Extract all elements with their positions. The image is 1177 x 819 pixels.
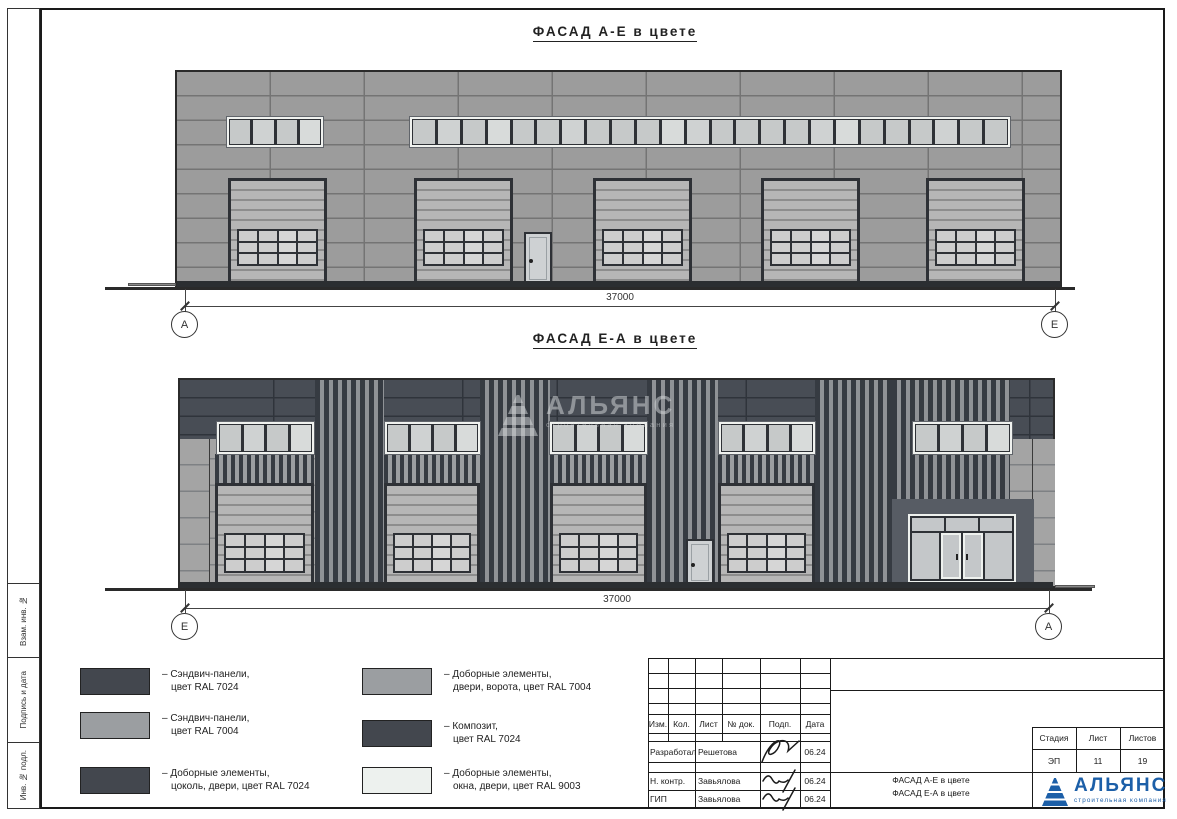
- window-pane: [587, 120, 609, 144]
- titleblock-line: [695, 658, 696, 809]
- window-pane: [266, 535, 284, 546]
- tb-col-podp: Подп.: [760, 714, 800, 733]
- legend-item: – Доборные элементы, окна, двери, цвет R…: [444, 767, 581, 793]
- window-pane: [787, 560, 804, 571]
- entrance-portal: [892, 499, 1034, 586]
- window-pane: [957, 243, 975, 253]
- window-pane: [769, 425, 789, 451]
- logo-name: АЛЬЯНС: [1074, 776, 1167, 796]
- ribbon-window: [385, 422, 480, 454]
- legend-item: – Доборные элементы, цоколь, двери, цвет…: [162, 767, 310, 793]
- axis-bubble-e: Е: [171, 613, 198, 640]
- window-pane: [624, 231, 642, 241]
- window-pane: [663, 243, 681, 253]
- window-pane: [253, 120, 273, 144]
- legend-swatch: [362, 767, 432, 794]
- gate-window-grid: [770, 229, 851, 266]
- window-pane: [600, 535, 617, 546]
- stamp-cell-inv: Инв. № подл.: [8, 742, 39, 808]
- axis-bubble-a: А: [171, 311, 198, 338]
- window-pane: [748, 535, 765, 546]
- window-pane: [434, 425, 454, 451]
- titleblock-line: [648, 807, 830, 808]
- window-pane: [388, 425, 408, 451]
- window-pane: [488, 120, 510, 144]
- legend-line: окна, двери, цвет RAL 9003: [453, 780, 581, 793]
- sectional-gate-3: [593, 178, 692, 285]
- tb-date: 06.24: [800, 790, 830, 807]
- window-pane: [246, 548, 264, 559]
- window-pane: [722, 425, 742, 451]
- window-pane: [425, 231, 443, 241]
- legend-line: – Доборные элементы,: [444, 767, 581, 780]
- left-panel-column: [180, 439, 210, 586]
- titleblock-line: [648, 703, 830, 704]
- window-pane: [772, 231, 790, 241]
- tb-date: 06.24: [800, 772, 830, 790]
- window-pane: [745, 425, 765, 451]
- gate-window-grid: [224, 533, 305, 573]
- window-pane: [246, 535, 264, 546]
- window-pane: [537, 120, 559, 144]
- window-pane: [395, 548, 412, 559]
- glass-pane: [980, 518, 1012, 531]
- window-pane: [792, 231, 810, 241]
- watermark-name: АЛЬЯНС: [546, 392, 675, 418]
- window-pane: [562, 120, 584, 144]
- window-pane: [996, 231, 1014, 241]
- window-pane: [787, 535, 804, 546]
- window-pane: [916, 425, 937, 451]
- legend-line: – Доборные элементы,: [444, 668, 591, 681]
- window-pane: [831, 231, 849, 241]
- window-pane: [226, 548, 244, 559]
- personnel-door: [524, 232, 552, 285]
- window-pane: [561, 535, 578, 546]
- signature: [760, 786, 800, 812]
- gate-window-grid: [602, 229, 683, 266]
- window-pane: [298, 254, 316, 264]
- legend-line: цвет RAL 7004: [171, 725, 249, 738]
- ribbon-window-long: [410, 117, 1010, 147]
- ribbon-window-short: [227, 117, 323, 147]
- glass-pane: [946, 518, 978, 531]
- tb-col-ndok: № док.: [722, 714, 760, 733]
- window-pane: [279, 231, 297, 241]
- legend-line: цоколь, двери, цвет RAL 7024: [171, 780, 310, 793]
- window-pane: [792, 425, 812, 451]
- company-watermark: АЛЬЯНС строительная компания: [498, 392, 675, 436]
- tb-col-data: Дата: [800, 714, 830, 733]
- ribbon-window: [217, 422, 314, 454]
- window-pane: [663, 254, 681, 264]
- slat-fringe: [384, 454, 480, 483]
- titleblock-line: [830, 690, 1165, 691]
- window-pane: [996, 243, 1014, 253]
- window-pane: [226, 560, 244, 571]
- legend-line: цвет RAL 7024: [171, 681, 249, 694]
- ground-line: [105, 588, 1092, 591]
- sectional-gate-5: [926, 178, 1025, 285]
- tb-sheets-value: 19: [1120, 749, 1165, 772]
- window-pane: [831, 243, 849, 253]
- sectional-gate-1: [215, 483, 314, 586]
- tb-sheet-label: Лист: [1076, 727, 1120, 749]
- slat-cluster: [315, 380, 384, 586]
- tb-role: Разработал: [650, 741, 695, 762]
- ribbon-window: [913, 422, 1012, 454]
- ramp-curb: [1055, 585, 1095, 588]
- sectional-gate-4: [761, 178, 860, 285]
- gate-window-grid: [727, 533, 806, 573]
- window-pane: [600, 548, 617, 559]
- window-pane: [604, 243, 622, 253]
- window-pane: [836, 120, 858, 144]
- legend-item: – Доборные элементы, двери, ворота, цвет…: [444, 668, 591, 694]
- window-pane: [465, 254, 483, 264]
- window-pane: [937, 231, 955, 241]
- window-pane: [484, 231, 502, 241]
- legend-item: – Сэндвич-панели, цвет RAL 7004: [162, 712, 249, 738]
- window-pane: [911, 120, 933, 144]
- dimension-line: [185, 306, 1055, 307]
- window-pane: [772, 254, 790, 264]
- stamp-cell-podpis: Подпись и дата: [8, 657, 39, 742]
- door-leaf: [941, 533, 961, 579]
- dimension-line: [185, 608, 1049, 609]
- window-pane: [465, 243, 483, 253]
- window-pane: [787, 548, 804, 559]
- titleblock-line: [648, 673, 830, 674]
- window-pane: [561, 548, 578, 559]
- window-pane: [988, 425, 1009, 451]
- window-pane: [259, 254, 277, 264]
- window-pane: [964, 425, 985, 451]
- gate-window-grid: [423, 229, 504, 266]
- tb-name: Завьялова: [698, 772, 758, 790]
- window-pane: [452, 535, 469, 546]
- window-pane: [445, 254, 463, 264]
- slat-fringe: [215, 454, 314, 483]
- watermark-subtitle: строительная компания: [546, 420, 675, 429]
- window-pane: [712, 120, 734, 144]
- window-pane: [748, 560, 765, 571]
- window-pane: [624, 243, 642, 253]
- slat-cluster: [815, 380, 892, 586]
- window-pane: [811, 120, 833, 144]
- window-pane: [433, 560, 450, 571]
- axis-leader-line: [1055, 289, 1056, 312]
- legend-line: цвет RAL 7024: [453, 733, 521, 746]
- stamp-cell-vzam: Взам. инв. №: [8, 583, 39, 657]
- storefront-glazing: [908, 514, 1016, 583]
- window-pane: [298, 231, 316, 241]
- window-pane: [768, 548, 785, 559]
- window-pane: [792, 254, 810, 264]
- window-pane: [768, 535, 785, 546]
- window-pane: [300, 120, 320, 144]
- window-pane: [452, 560, 469, 571]
- window-pane: [977, 254, 995, 264]
- window-pane: [580, 535, 597, 546]
- window-pane: [285, 535, 303, 546]
- stamp-label: Подпись и дата: [19, 671, 28, 729]
- window-pane: [619, 560, 636, 571]
- gate-window-grid: [559, 533, 638, 573]
- window-pane: [748, 548, 765, 559]
- window-pane: [580, 548, 597, 559]
- window-pane: [957, 231, 975, 241]
- tb-doc-line: ФАСАД А-Е в цвете: [830, 774, 1032, 787]
- window-pane: [395, 535, 412, 546]
- window-pane: [637, 120, 659, 144]
- axis-leader-line: [1049, 590, 1050, 613]
- window-pane: [886, 120, 908, 144]
- legend-item: – Композит, цвет RAL 7024: [444, 720, 521, 746]
- window-pane: [259, 231, 277, 241]
- window-pane: [663, 231, 681, 241]
- window-pane: [438, 120, 460, 144]
- door-leaf: [963, 533, 983, 579]
- gate-window-grid: [237, 229, 318, 266]
- window-pane: [425, 243, 443, 253]
- window-pane: [957, 254, 975, 264]
- tb-sheets-label: Листов: [1120, 727, 1165, 749]
- window-pane: [612, 120, 634, 144]
- facade2-title: ФАСАД Е-А в цвете: [170, 331, 1060, 346]
- signature: [757, 734, 803, 766]
- company-logo: АЛЬЯНС строительная компания: [1042, 776, 1167, 806]
- window-pane: [729, 560, 746, 571]
- window-pane: [414, 560, 431, 571]
- window-pane: [604, 231, 622, 241]
- drawing-sheet: Взам. инв. № Подпись и дата Инв. № подл.…: [0, 0, 1177, 819]
- personnel-door: [686, 539, 714, 586]
- transom-row: [912, 518, 1012, 531]
- window-pane: [580, 560, 597, 571]
- stamp-label: Инв. № подл.: [19, 750, 28, 800]
- legend-line: двери, ворота, цвет RAL 7004: [453, 681, 591, 694]
- glass-pane: [912, 518, 944, 531]
- window-pane: [220, 425, 241, 451]
- titleblock-line: [648, 658, 1165, 659]
- sidelight: [985, 533, 1012, 579]
- window-pane: [729, 535, 746, 546]
- window-pane: [761, 120, 783, 144]
- left-stamp-strip: Взам. инв. № Подпись и дата Инв. № подл.: [7, 8, 40, 809]
- stamp-label: Взам. инв. №: [19, 596, 28, 646]
- tb-document-title: ФАСАД А-Е в цвете ФАСАД Е-А в цвете: [830, 774, 1032, 800]
- window-pane: [226, 535, 244, 546]
- window-pane: [414, 535, 431, 546]
- legend-swatch: [362, 668, 432, 695]
- legend-swatch: [80, 668, 150, 695]
- window-pane: [484, 243, 502, 253]
- window-pane: [266, 560, 284, 571]
- window-pane: [259, 243, 277, 253]
- window-pane: [996, 254, 1014, 264]
- window-pane: [463, 120, 485, 144]
- gate-window-grid: [935, 229, 1016, 266]
- door-row: [912, 533, 1012, 579]
- facade1-title: ФАСАД А-Е в цвете: [170, 24, 1060, 39]
- window-pane: [239, 254, 257, 264]
- ramp-curb: [128, 283, 176, 286]
- tb-role: ГИП: [650, 790, 695, 807]
- gate-window-grid: [393, 533, 471, 573]
- window-pane: [414, 548, 431, 559]
- window-pane: [644, 231, 662, 241]
- window-pane: [433, 548, 450, 559]
- sectional-gate-1: [228, 178, 327, 285]
- slat-fringe: [718, 454, 815, 483]
- tb-role: Н. контр.: [650, 772, 695, 790]
- window-pane: [246, 560, 264, 571]
- window-pane: [433, 535, 450, 546]
- window-pane: [768, 560, 785, 571]
- window-pane: [977, 243, 995, 253]
- window-pane: [619, 535, 636, 546]
- window-pane: [786, 120, 808, 144]
- sectional-gate-3: [550, 483, 647, 586]
- window-pane: [937, 254, 955, 264]
- window-pane: [937, 243, 955, 253]
- double-door: [941, 533, 982, 579]
- window-pane: [644, 254, 662, 264]
- titleblock-line: [648, 688, 830, 689]
- window-pane: [687, 120, 709, 144]
- window-pane: [484, 254, 502, 264]
- window-pane: [279, 243, 297, 253]
- window-pane: [831, 254, 849, 264]
- window-pane: [277, 120, 297, 144]
- titleblock-line: [830, 772, 1165, 773]
- window-pane: [445, 231, 463, 241]
- window-pane: [940, 425, 961, 451]
- legend-line: – Сэндвич-панели,: [162, 712, 249, 725]
- legend-line: – Доборные элементы,: [162, 767, 310, 780]
- window-pane: [604, 254, 622, 264]
- window-pane: [935, 120, 957, 144]
- tb-col-izm: Изм.: [648, 714, 668, 733]
- window-pane: [457, 425, 477, 451]
- facade1-elevation: [175, 70, 1062, 289]
- tb-stage-label: Стадия: [1032, 727, 1076, 749]
- ribbon-window: [719, 422, 815, 454]
- window-pane: [960, 120, 982, 144]
- window-pane: [736, 120, 758, 144]
- window-pane: [395, 560, 412, 571]
- sectional-gate-2: [414, 178, 513, 285]
- window-pane: [861, 120, 883, 144]
- window-pane: [267, 425, 288, 451]
- window-pane: [513, 120, 535, 144]
- window-pane: [561, 560, 578, 571]
- window-pane: [413, 120, 435, 144]
- window-pane: [465, 231, 483, 241]
- window-pane: [812, 243, 830, 253]
- dimension-label: 37000: [185, 594, 1049, 605]
- tb-date: 06.24: [800, 741, 830, 762]
- logo-subtitle: строительная компания: [1074, 797, 1167, 804]
- sidelight: [912, 533, 939, 579]
- slat-fringe: [550, 454, 647, 483]
- tb-col-kol: Кол.: [668, 714, 695, 733]
- tb-col-list: Лист: [695, 714, 722, 733]
- window-pane: [985, 120, 1007, 144]
- ground-line: [105, 287, 1075, 290]
- dimension-label: 37000: [185, 292, 1055, 303]
- legend-line: – Композит,: [444, 720, 521, 733]
- legend-line: – Сэндвич-панели,: [162, 668, 249, 681]
- window-pane: [812, 231, 830, 241]
- window-pane: [772, 243, 790, 253]
- legend-swatch: [80, 712, 150, 739]
- window-pane: [729, 548, 746, 559]
- pyramid-logo-icon: [1042, 776, 1068, 806]
- window-pane: [812, 254, 830, 264]
- window-pane: [600, 560, 617, 571]
- window-pane: [624, 254, 642, 264]
- window-pane: [239, 231, 257, 241]
- legend-swatch: [362, 720, 432, 747]
- axis-bubble-a: А: [1035, 613, 1062, 640]
- tb-sheet-value: 11: [1076, 749, 1120, 772]
- axis-bubble-e: Е: [1041, 311, 1068, 338]
- sectional-gate-4: [718, 483, 815, 586]
- sectional-gate-2: [384, 483, 480, 586]
- window-pane: [266, 548, 284, 559]
- tb-name: Решетова: [698, 741, 758, 762]
- window-pane: [279, 254, 297, 264]
- window-pane: [977, 231, 995, 241]
- pyramid-logo-icon: [498, 392, 538, 436]
- window-pane: [298, 243, 316, 253]
- window-pane: [452, 548, 469, 559]
- window-pane: [285, 560, 303, 571]
- tb-name: Завьялова: [698, 790, 758, 807]
- tb-stage-value: ЭП: [1032, 749, 1076, 772]
- tb-doc-line: ФАСАД Е-А в цвете: [830, 787, 1032, 800]
- window-pane: [239, 243, 257, 253]
- window-pane: [662, 120, 684, 144]
- window-pane: [230, 120, 250, 144]
- window-pane: [619, 548, 636, 559]
- window-pane: [244, 425, 265, 451]
- window-pane: [644, 243, 662, 253]
- legend-swatch: [80, 767, 150, 794]
- window-pane: [445, 243, 463, 253]
- window-pane: [291, 425, 312, 451]
- window-pane: [425, 254, 443, 264]
- window-pane: [411, 425, 431, 451]
- window-pane: [285, 548, 303, 559]
- window-pane: [792, 243, 810, 253]
- legend-item: – Сэндвич-панели, цвет RAL 7024: [162, 668, 249, 694]
